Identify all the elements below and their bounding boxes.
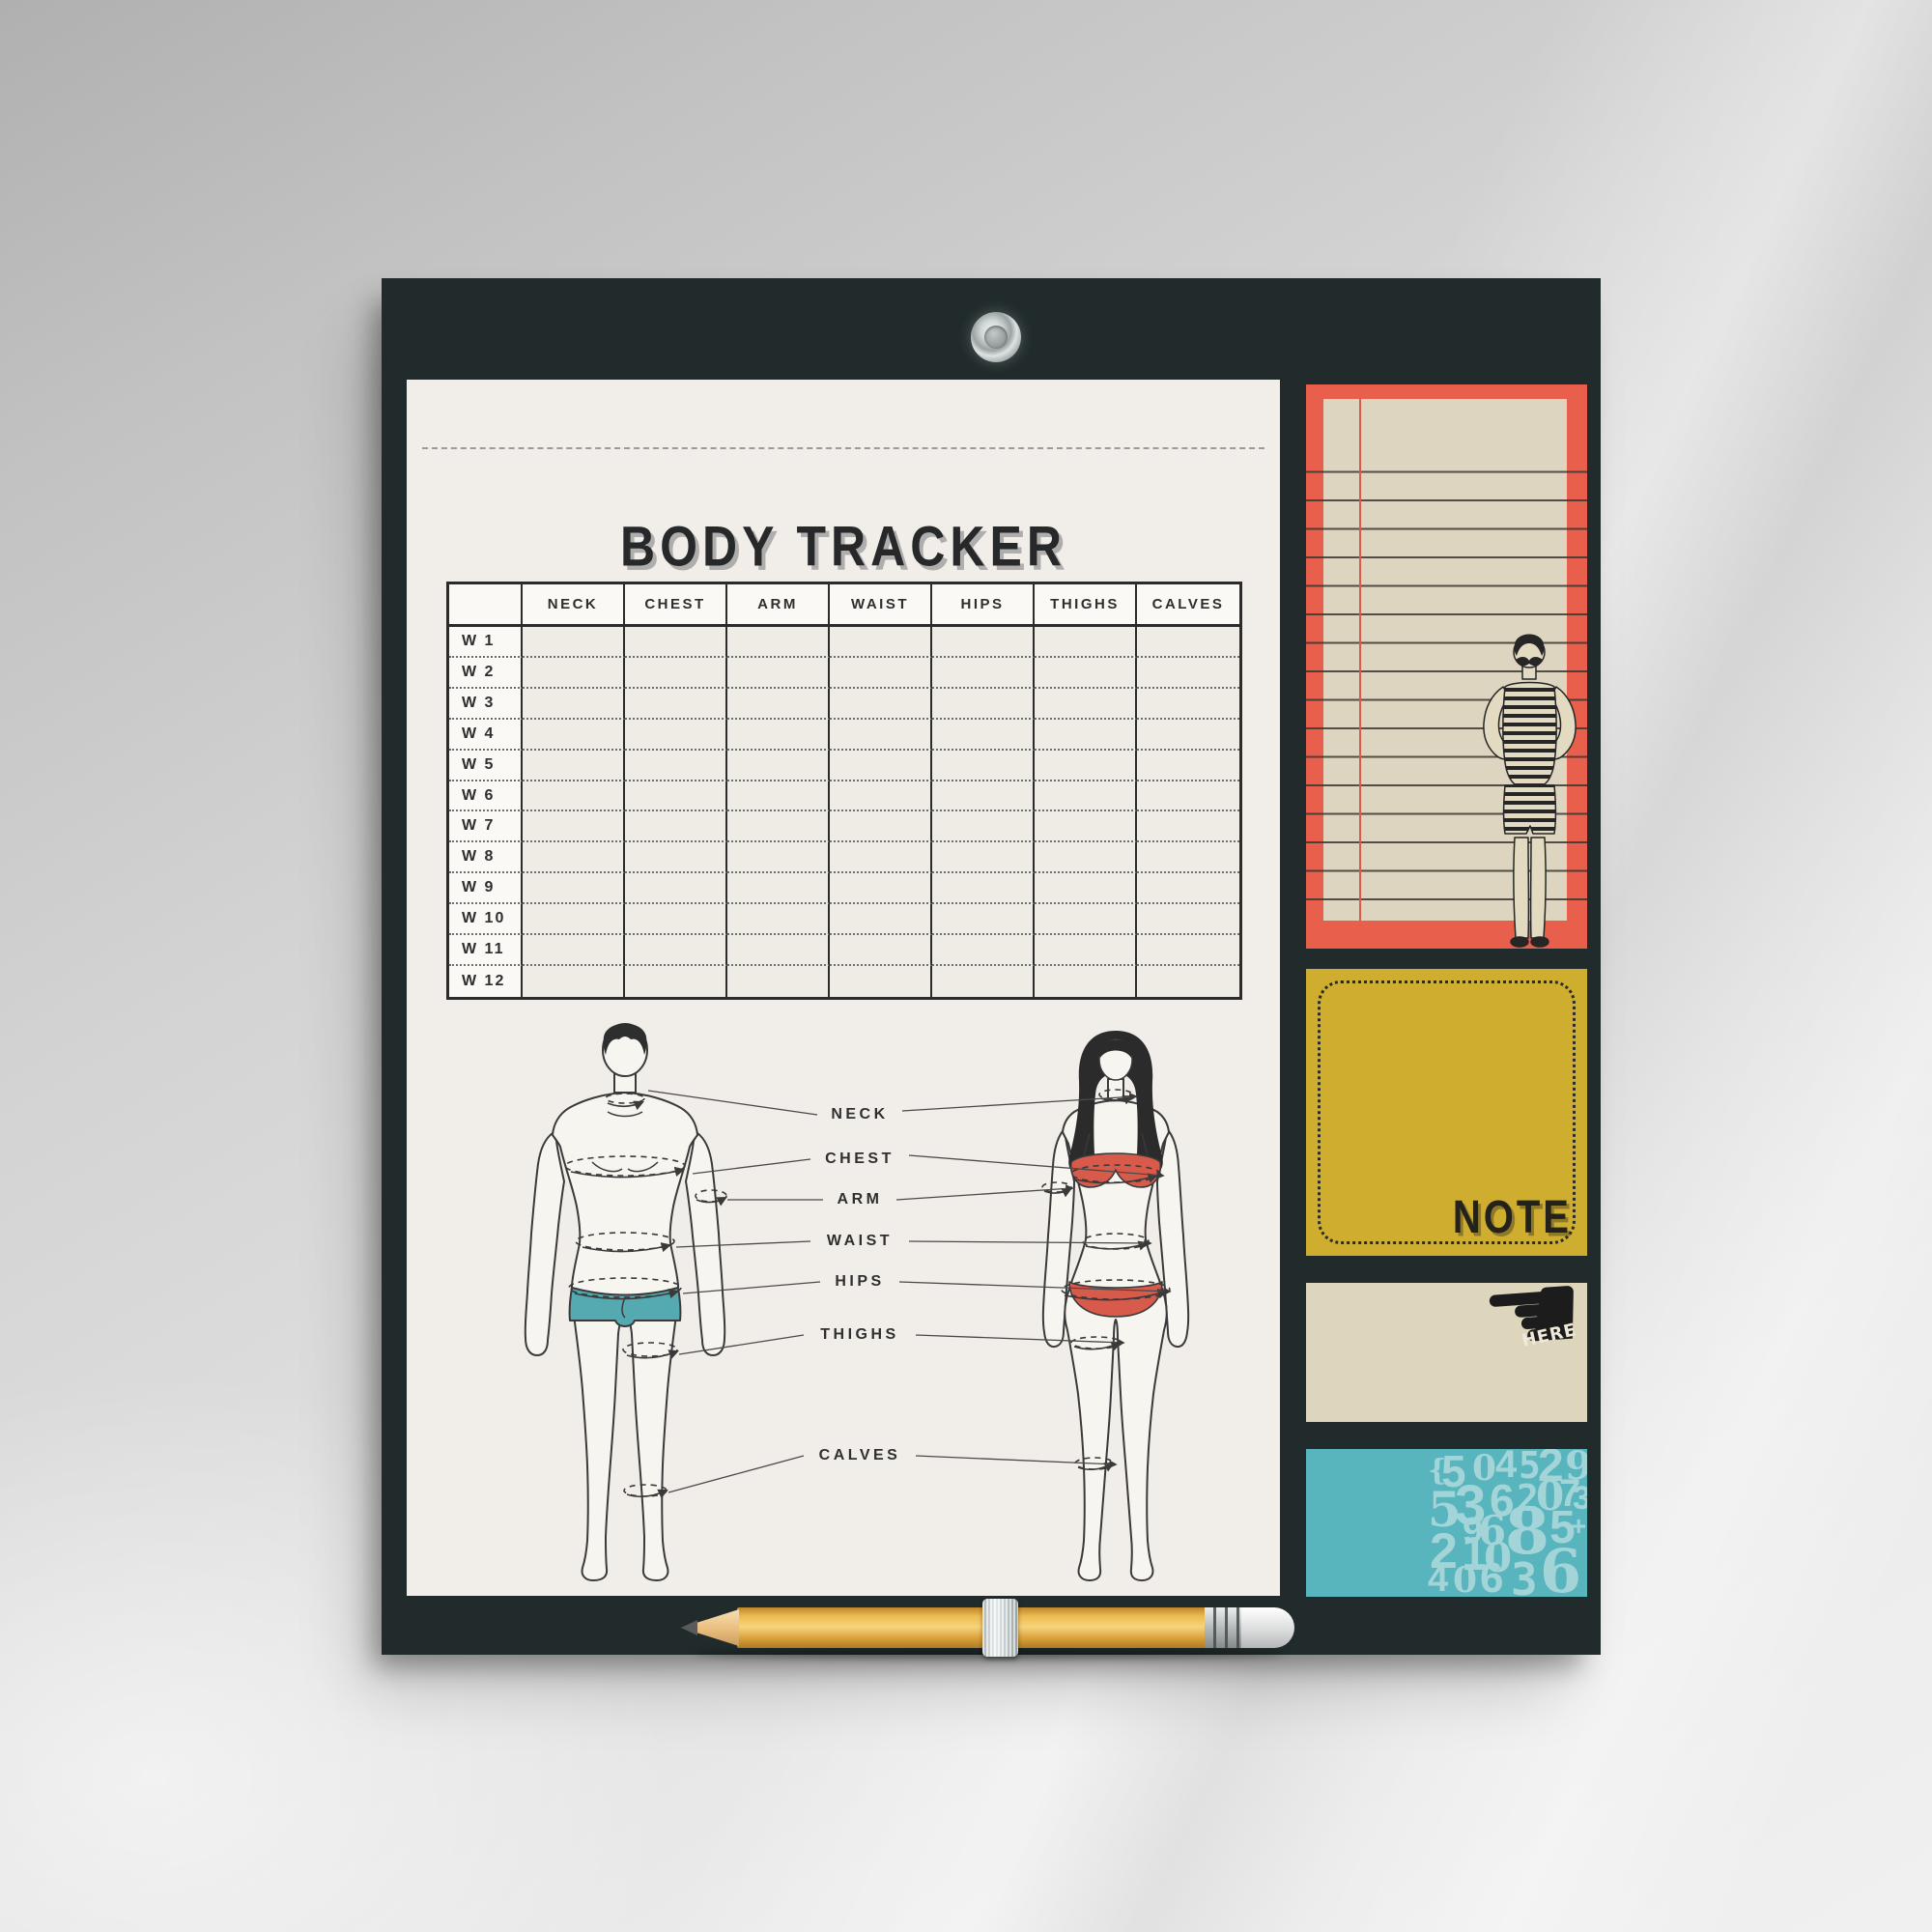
pencil-lead (681, 1620, 697, 1635)
diagram-label-arm: ARM (838, 1191, 883, 1207)
measurement-cell (1035, 627, 1137, 658)
measurement-cell (625, 720, 727, 751)
measurement-cell (830, 966, 932, 997)
diagram-label-neck: NECK (831, 1106, 888, 1122)
week-label-cell: W 2 (449, 658, 523, 689)
measurement-cell (830, 904, 932, 935)
measurement-cell (523, 966, 625, 997)
body-diagram: NECK CHEST ARM WAIST HIPS THIGHS CALVES (407, 1009, 1280, 1596)
measurement-cell (1137, 935, 1239, 966)
measurement-cell (523, 781, 625, 812)
diagram-label-calves: CALVES (819, 1447, 901, 1463)
measurement-cell (932, 689, 1035, 720)
female-figure (1043, 1031, 1188, 1580)
measurement-cell (625, 811, 727, 842)
measurement-cell (830, 811, 932, 842)
measurement-cell (932, 966, 1035, 997)
product-photo: BODY TRACKER NECKCHESTARMWAISTHIPSTHIGHS… (0, 0, 1932, 1932)
margin-line (1359, 399, 1361, 921)
measurement-cell (932, 751, 1035, 781)
measurement-cell (625, 627, 727, 658)
measurement-cell (1137, 627, 1239, 658)
week-label-cell: W 7 (449, 811, 523, 842)
measurement-cell (727, 873, 830, 904)
measurement-cell (1137, 873, 1239, 904)
measurement-cell (523, 720, 625, 751)
diagram-label-thighs: THIGHS (820, 1326, 898, 1343)
measurement-cell (727, 935, 830, 966)
collage-digit: 4 (1428, 1561, 1448, 1597)
pencil (681, 1605, 1294, 1650)
measurement-cell (523, 811, 625, 842)
numbers-pad: { 5 0 4 5 2 9 3 5 3 6 2 0 7 6 9 8 5 2 1 (1306, 1449, 1587, 1597)
table-header-cell: NECK (523, 584, 625, 627)
measurement-cell (1035, 658, 1137, 689)
measurement-cell (1035, 720, 1137, 751)
measurement-cell (625, 658, 727, 689)
tear-off-line (422, 447, 1264, 449)
note-pad: NOTE (1306, 969, 1587, 1256)
measurement-cell (830, 781, 932, 812)
table-corner-cell (449, 584, 523, 627)
measurement-cell (727, 627, 830, 658)
pencil-body (737, 1607, 1207, 1648)
measurement-cell (523, 689, 625, 720)
measurement-cell (1035, 904, 1137, 935)
measurement-cell (523, 904, 625, 935)
tracker-board: BODY TRACKER NECKCHESTARMWAISTHIPSTHIGHS… (382, 278, 1601, 1655)
measurement-cell (830, 842, 932, 873)
table-header-cell: ARM (727, 584, 830, 627)
page-title: BODY TRACKER (407, 514, 1280, 579)
measurement-cell (625, 935, 727, 966)
measurement-cell (625, 842, 727, 873)
measurement-cell (523, 935, 625, 966)
measurement-cell (625, 689, 727, 720)
measurement-cell (727, 966, 830, 997)
measurement-cell (1035, 935, 1137, 966)
week-label-cell: W 12 (449, 966, 523, 997)
tracker-sheet: BODY TRACKER NECKCHESTARMWAISTHIPSTHIGHS… (407, 380, 1280, 1596)
measurement-cell (727, 811, 830, 842)
table-header-cell: CALVES (1137, 584, 1239, 627)
measurement-cell (1035, 873, 1137, 904)
measurement-cell (830, 627, 932, 658)
week-label-cell: W 1 (449, 627, 523, 658)
measurement-cell (1137, 689, 1239, 720)
measurement-cell (523, 842, 625, 873)
measurement-cell (625, 966, 727, 997)
week-label-cell: W 4 (449, 720, 523, 751)
table-header-cell: HIPS (932, 584, 1035, 627)
measurement-cell (1137, 966, 1239, 997)
pencil-eraser (1241, 1607, 1294, 1648)
collage-digit: 3 (1511, 1557, 1538, 1597)
measurement-cell (830, 658, 932, 689)
lined-notepad (1306, 384, 1587, 949)
numbers-collage: { 5 0 4 5 2 9 3 5 3 6 2 0 7 6 9 8 5 2 1 (1428, 1449, 1587, 1597)
strongman-illustration (1472, 623, 1587, 949)
measurement-cell (625, 904, 727, 935)
measurement-cell (1137, 720, 1239, 751)
measurement-cell (727, 689, 830, 720)
measurement-cell (932, 842, 1035, 873)
pencil-ferrule (1205, 1607, 1243, 1648)
week-label-cell: W 10 (449, 904, 523, 935)
measurement-cell (727, 658, 830, 689)
diagram-label-hips: HIPS (835, 1273, 884, 1290)
measurement-cell (727, 720, 830, 751)
collage-digit: + (1571, 1513, 1586, 1540)
here-pad: ☚ HERE (1306, 1283, 1587, 1422)
measurement-cell (727, 781, 830, 812)
pencil-holder-clip (982, 1599, 1018, 1657)
measurement-cell (625, 873, 727, 904)
eyelet-hole (984, 326, 1008, 349)
measurement-cell (932, 811, 1035, 842)
measurement-cell (1035, 842, 1137, 873)
measurement-cell (523, 873, 625, 904)
measurement-cell (1035, 689, 1137, 720)
measurement-cell (727, 842, 830, 873)
measurement-cell (523, 627, 625, 658)
measurement-cell (1035, 811, 1137, 842)
measurement-cell (523, 658, 625, 689)
diagram-label-chest: CHEST (825, 1151, 895, 1167)
measurement-cell (1137, 781, 1239, 812)
measurement-cell (932, 781, 1035, 812)
measurement-cell (625, 781, 727, 812)
measurement-cell (932, 873, 1035, 904)
measurement-cell (523, 751, 625, 781)
measurement-cell (1137, 751, 1239, 781)
collage-digit: 0 (1453, 1563, 1477, 1597)
measurement-cell (1035, 781, 1137, 812)
measurement-cell (830, 751, 932, 781)
measurement-cell (932, 720, 1035, 751)
measurement-cell (1137, 904, 1239, 935)
pointing-hand-icon: ☚ (1477, 1254, 1589, 1377)
measurement-cell (1137, 811, 1239, 842)
week-label-cell: W 3 (449, 689, 523, 720)
measurement-cell (830, 720, 932, 751)
measurement-cell (625, 751, 727, 781)
measurement-cell (830, 873, 932, 904)
measurement-cell (727, 904, 830, 935)
measurement-cell (1137, 658, 1239, 689)
collage-digit: 6 (1480, 1557, 1503, 1597)
measurement-cell (932, 935, 1035, 966)
note-pad-label: NOTE (1453, 1192, 1572, 1244)
measurement-cell (932, 904, 1035, 935)
measurement-cell (830, 935, 932, 966)
measurement-cell (932, 627, 1035, 658)
table-header-cell: CHEST (625, 584, 727, 627)
week-label-cell: W 11 (449, 935, 523, 966)
measurement-cell (932, 658, 1035, 689)
table-header-cell: WAIST (830, 584, 932, 627)
measurement-cell (1035, 966, 1137, 997)
hanging-eyelet (971, 312, 1021, 362)
diagram-label-waist: WAIST (827, 1233, 893, 1249)
measurement-cell (1137, 842, 1239, 873)
collage-digit: 6 (1540, 1542, 1581, 1597)
table-header-cell: THIGHS (1035, 584, 1137, 627)
measurement-cell (1035, 751, 1137, 781)
measurement-cell (727, 751, 830, 781)
measurement-table: NECKCHESTARMWAISTHIPSTHIGHSCALVESW 1W 2W… (446, 582, 1242, 1000)
week-label-cell: W 8 (449, 842, 523, 873)
week-label-cell: W 6 (449, 781, 523, 812)
measurement-cell (830, 689, 932, 720)
week-label-cell: W 9 (449, 873, 523, 904)
week-label-cell: W 5 (449, 751, 523, 781)
